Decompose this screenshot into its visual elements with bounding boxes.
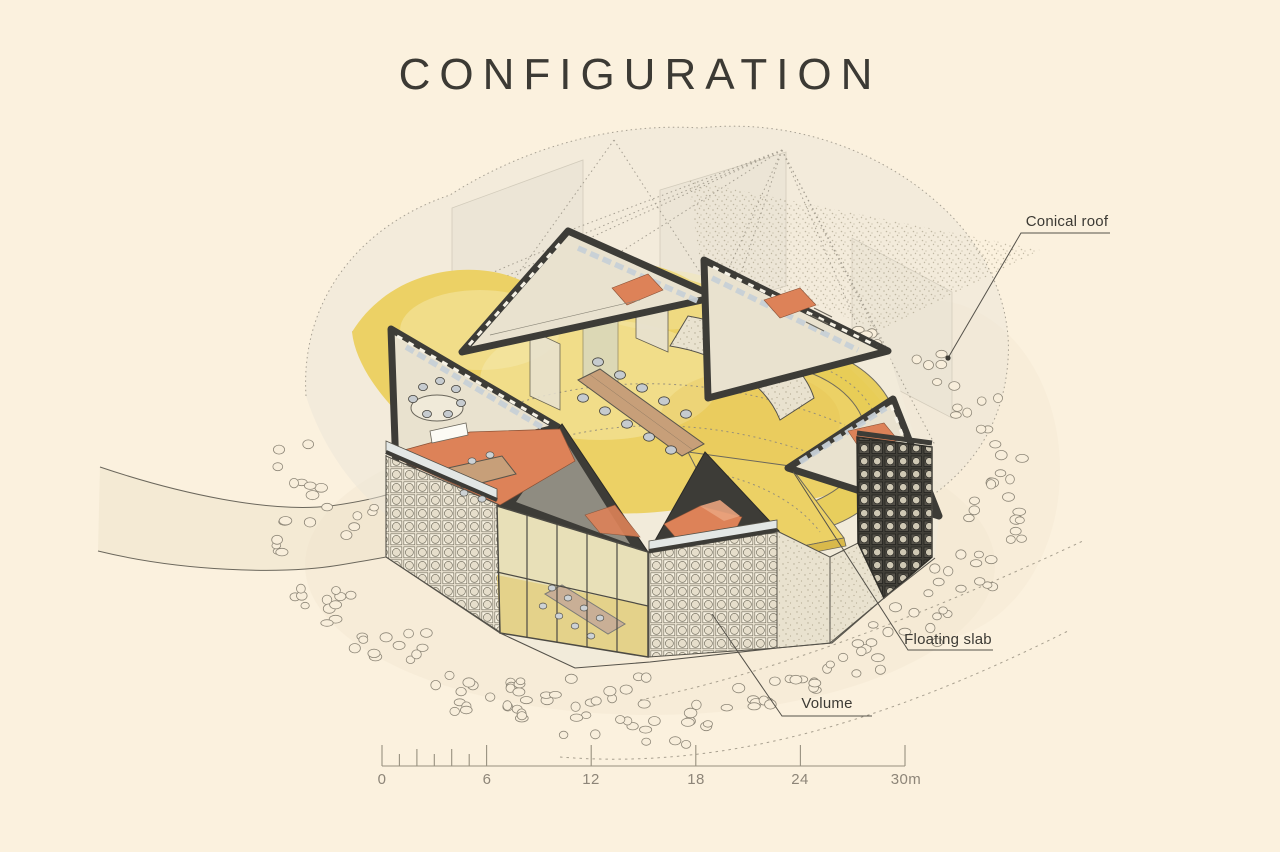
scale-tick-label: 30m <box>891 771 921 788</box>
scale-tick-label: 6 <box>483 771 492 788</box>
entry-path <box>98 467 386 570</box>
scale-tick-label: 24 <box>791 771 809 788</box>
annotation-floating-slab: Floating slab <box>901 631 995 648</box>
configuration-poster: CONFIGURATION Conical roof Floating slab… <box>0 0 1280 852</box>
facade-lattice-right <box>649 520 777 657</box>
scale-tick-label: 12 <box>582 771 600 788</box>
scale-bar <box>382 745 905 766</box>
page-title: CONFIGURATION <box>0 50 1280 100</box>
annotation-conical-roof: Conical roof <box>1020 213 1114 230</box>
annotation-volume: Volume <box>780 695 874 712</box>
scale-tick-label: 18 <box>687 771 705 788</box>
axonometric-illustration <box>0 0 1280 852</box>
scale-tick-label: 0 <box>378 771 387 788</box>
